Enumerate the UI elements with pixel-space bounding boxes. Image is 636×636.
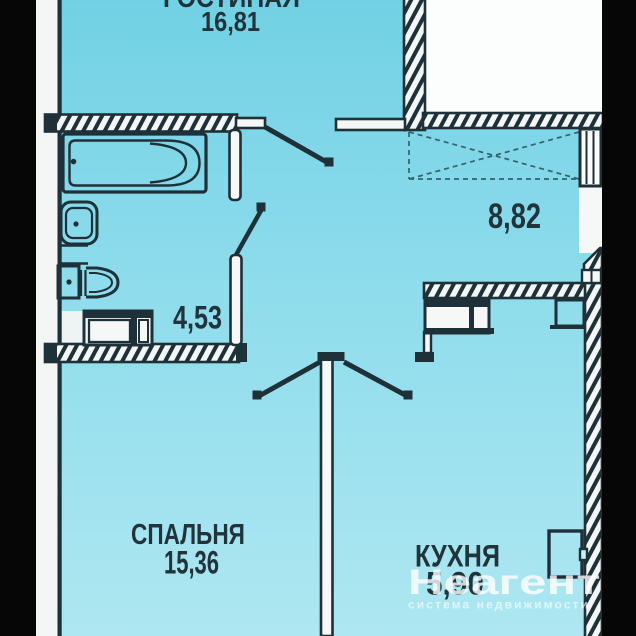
svg-text:8,82: 8,82 [488, 197, 541, 236]
svg-text:15,36: 15,36 [164, 544, 219, 580]
svg-text:4,53: 4,53 [173, 301, 222, 337]
svg-text:16,81: 16,81 [201, 7, 260, 37]
svg-text:Неагент: Неагент [408, 563, 600, 602]
svg-text:система недвижимости: система недвижимости [408, 598, 588, 612]
